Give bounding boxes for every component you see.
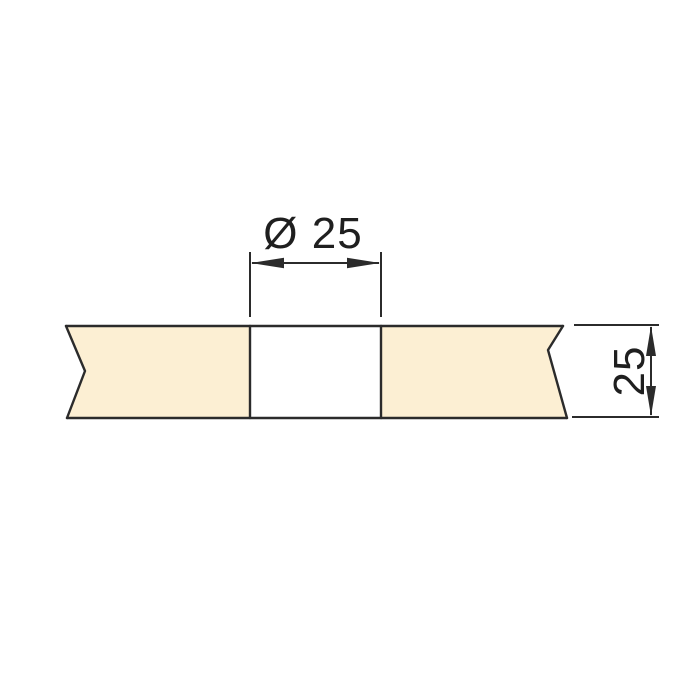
thickness-dimension-text: 25	[605, 346, 654, 397]
diameter-dimension-text: Ø 25	[263, 209, 362, 258]
arrow-left-icon	[251, 258, 284, 269]
panel-cross-section	[66, 326, 567, 418]
drawing-canvas: Ø 25 25	[0, 0, 700, 700]
thickness-dimension: 25	[572, 325, 659, 417]
diameter-label: Ø 25	[263, 209, 362, 258]
technical-drawing: Ø 25 25	[0, 0, 700, 700]
thickness-label: 25	[605, 346, 654, 397]
diameter-dimension: Ø 25	[250, 209, 381, 317]
panel-left-section	[66, 326, 250, 418]
drill-hole	[250, 326, 381, 418]
panel-right-section	[381, 326, 567, 418]
arrow-right-icon	[347, 258, 380, 269]
